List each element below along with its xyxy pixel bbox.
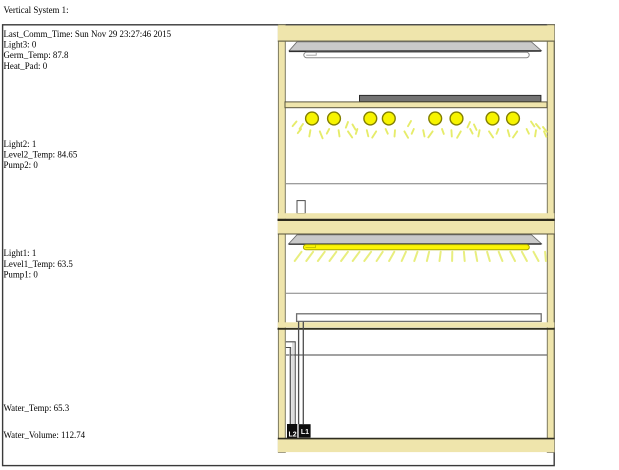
svg-text:Pump1: 0: Pump1: 0	[4, 269, 39, 279]
svg-text:Last_Comm_Time: Sun Nov 29 23:: Last_Comm_Time: Sun Nov 29 23:27:46 2015	[4, 29, 172, 39]
svg-text:Pump2: 0: Pump2: 0	[4, 160, 39, 170]
svg-text:L2: L2	[289, 431, 297, 438]
svg-text:Light3: 0: Light3: 0	[4, 40, 37, 50]
svg-text:Germ_Temp: 87.8: Germ_Temp: 87.8	[4, 50, 70, 60]
svg-text:Vertical System 1:: Vertical System 1:	[4, 5, 69, 15]
svg-text:Water_Temp: 65.3: Water_Temp: 65.3	[4, 403, 70, 413]
svg-text:L1: L1	[301, 429, 309, 436]
svg-text:Level1_Temp: 63.5: Level1_Temp: 63.5	[4, 259, 74, 269]
svg-text:Water_Volume: 112.74: Water_Volume: 112.74	[4, 430, 86, 440]
svg-text:Heat_Pad: 0: Heat_Pad: 0	[4, 61, 48, 71]
svg-text:Level2_Temp: 84.65: Level2_Temp: 84.65	[4, 149, 78, 159]
svg-text:Light2: 1: Light2: 1	[4, 139, 37, 149]
svg-text:Light1: 1: Light1: 1	[4, 248, 37, 258]
